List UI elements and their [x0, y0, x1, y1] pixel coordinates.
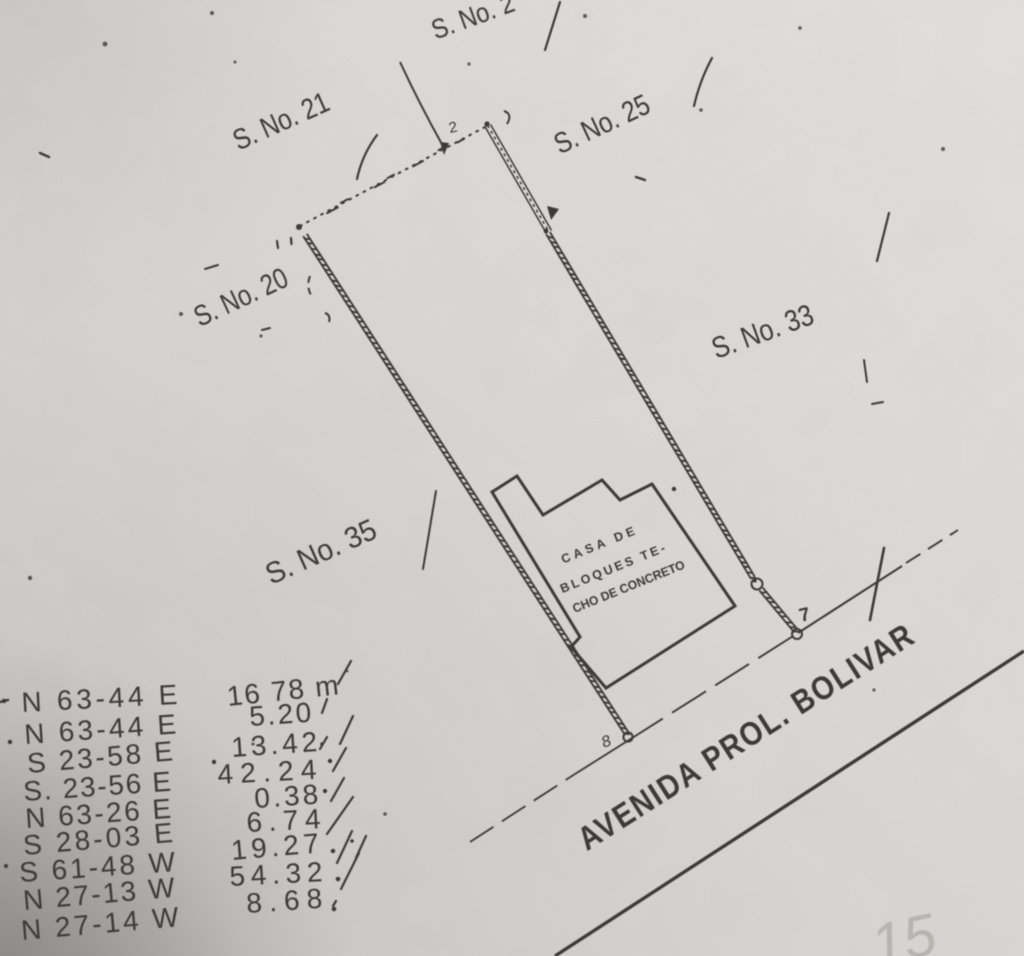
svg-text:8.68: 8.68 — [245, 883, 323, 919]
